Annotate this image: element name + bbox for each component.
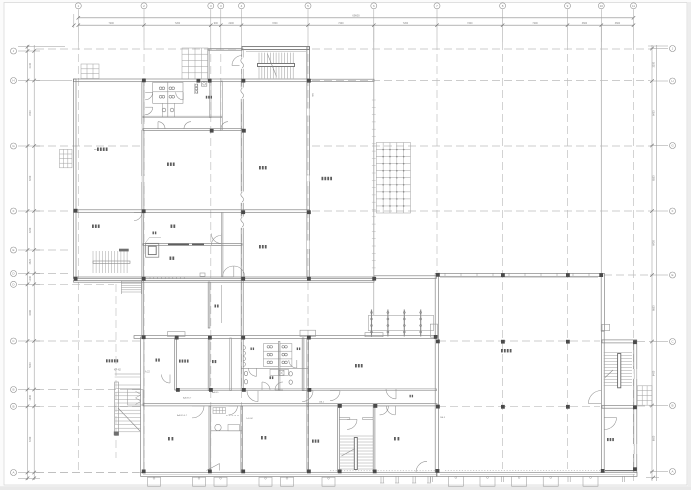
svg-text:1x10M: 1x10M [246, 418, 253, 420]
svg-text:1200: 1200 [29, 276, 32, 282]
svg-text:7200: 7200 [29, 110, 32, 116]
svg-text:6450: 6450 [652, 110, 655, 116]
svg-text:B: B [12, 405, 14, 409]
svg-text:2200: 2200 [228, 22, 234, 25]
svg-text:7200: 7200 [403, 22, 409, 25]
svg-text:B: B [671, 404, 673, 408]
svg-text:7200: 7200 [532, 22, 538, 25]
svg-text:3600: 3600 [615, 22, 621, 25]
svg-text:F: F [672, 209, 674, 213]
svg-text:KP-N2: KP-N2 [114, 369, 121, 371]
svg-text:A.22: A.22 [145, 370, 150, 373]
svg-text:4200: 4200 [29, 227, 32, 233]
svg-text:6550: 6550 [652, 175, 655, 181]
svg-text:3300: 3300 [652, 61, 655, 67]
svg-text:H: H [671, 79, 673, 83]
svg-text:3600: 3600 [582, 22, 588, 25]
svg-text:7200: 7200 [467, 22, 473, 25]
svg-text:69600: 69600 [352, 14, 360, 18]
svg-text:900: 900 [214, 22, 219, 25]
svg-text:7200: 7200 [29, 436, 32, 442]
svg-text:2520: 2520 [29, 258, 32, 264]
svg-text:AA-N5: AA-N5 [212, 391, 219, 394]
svg-text:E: E [12, 248, 14, 252]
svg-text:1800: 1800 [29, 395, 32, 401]
svg-text:H: H [12, 79, 14, 83]
svg-text:10: 10 [600, 4, 604, 8]
svg-text:7200: 7200 [29, 175, 32, 181]
svg-text:AA-N6.7: AA-N6.7 [183, 397, 192, 400]
svg-text:7200: 7200 [338, 22, 344, 25]
svg-text:6400: 6400 [652, 370, 655, 376]
svg-text:5400: 5400 [29, 362, 32, 368]
svg-text:6650: 6650 [652, 305, 655, 311]
svg-text:2AL3: 2AL3 [440, 416, 446, 419]
svg-text:6400: 6400 [652, 240, 655, 246]
svg-text:7200: 7200 [108, 22, 114, 25]
svg-text:2100: 2100 [29, 62, 32, 68]
svg-text:A: A [671, 470, 673, 474]
svg-text:6000: 6000 [29, 309, 32, 315]
svg-text:7200: 7200 [175, 22, 181, 25]
svg-text:A: A [12, 471, 14, 475]
svg-text:2AL2: 2AL2 [319, 401, 325, 404]
svg-text:F: F [13, 209, 15, 213]
svg-text:E: E [671, 273, 673, 277]
svg-text:6600: 6600 [652, 435, 655, 441]
svg-text:11: 11 [632, 4, 635, 8]
svg-text:AA-N5.6.7: AA-N5.6.7 [177, 414, 188, 417]
svg-text:B: B [12, 388, 14, 392]
svg-text:7200: 7200 [272, 22, 278, 25]
